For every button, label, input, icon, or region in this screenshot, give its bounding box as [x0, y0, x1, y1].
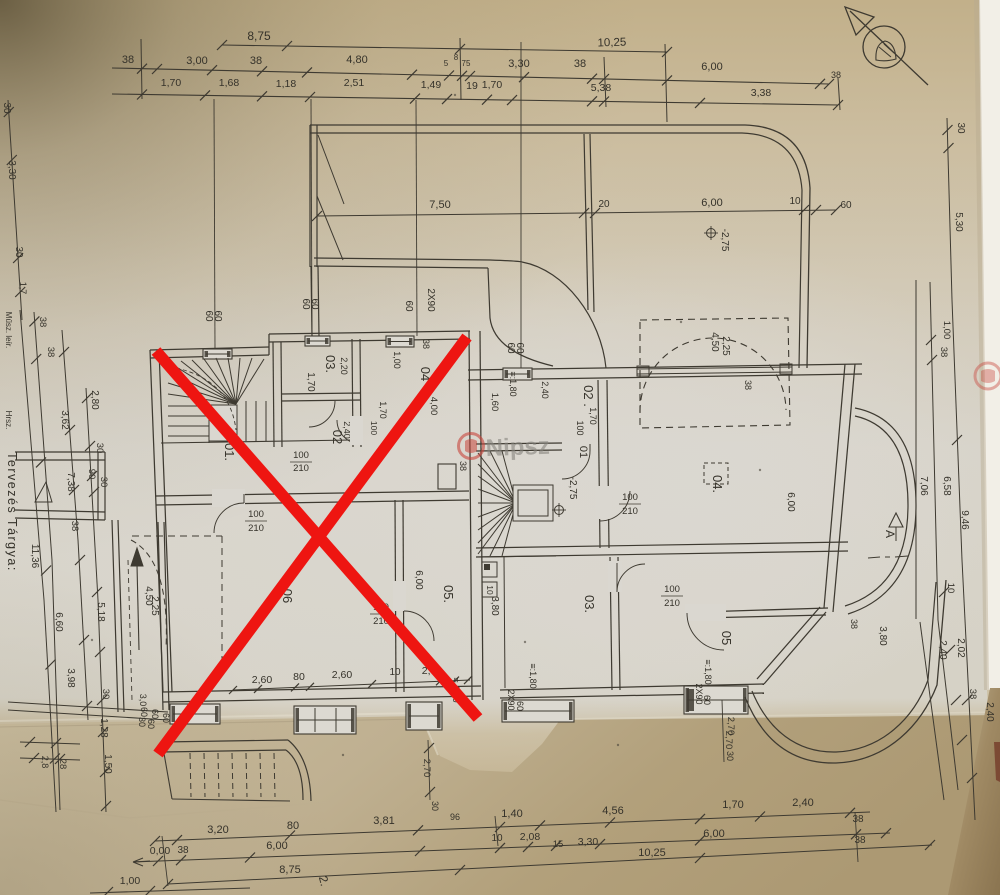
svg-text:3,30: 3,30: [578, 836, 599, 848]
svg-text:3,62: 3,62: [59, 410, 70, 430]
svg-text:10: 10: [389, 667, 401, 678]
svg-text:3,0: 3,0: [138, 694, 148, 707]
svg-text:1,00: 1,00: [392, 351, 402, 369]
svg-text:38: 38: [967, 689, 978, 700]
svg-text:7,50: 7,50: [429, 199, 450, 211]
svg-text:38: 38: [122, 54, 134, 66]
svg-text:03.: 03.: [323, 355, 338, 373]
svg-text:5: 5: [444, 59, 449, 68]
svg-text:1,70: 1,70: [588, 407, 598, 425]
svg-text:11,36: 11,36: [29, 544, 40, 569]
svg-text:2,40: 2,40: [792, 797, 813, 809]
svg-text:4,50: 4,50: [709, 332, 720, 352]
svg-text:30: 30: [98, 477, 109, 488]
svg-text:10: 10: [485, 585, 495, 595]
svg-text:100: 100: [369, 421, 379, 435]
svg-text:≡:1,80: ≡:1,80: [508, 371, 518, 396]
svg-text:1,00: 1,00: [120, 875, 141, 887]
svg-text:38: 38: [37, 317, 48, 328]
svg-text:8,75: 8,75: [247, 29, 271, 43]
svg-text:75: 75: [462, 59, 471, 68]
svg-text:1,70: 1,70: [722, 799, 743, 811]
svg-text:1,70: 1,70: [378, 401, 388, 419]
svg-text:05.: 05.: [441, 585, 456, 603]
svg-text:4,56: 4,56: [602, 805, 623, 817]
svg-text:60: 60: [309, 298, 320, 310]
svg-text:2,51: 2,51: [344, 77, 365, 89]
svg-text:5,18: 5,18: [95, 602, 106, 622]
svg-text:60: 60: [161, 713, 171, 723]
svg-text:38: 38: [45, 347, 56, 358]
svg-text:-2,75: -2,75: [719, 229, 730, 252]
svg-text:2X90: 2X90: [425, 288, 436, 312]
svg-text:38: 38: [852, 814, 864, 825]
svg-text:02 .: 02 .: [581, 385, 596, 407]
svg-text:6,00: 6,00: [266, 840, 287, 852]
svg-text:80: 80: [287, 820, 299, 832]
svg-text:60: 60: [139, 707, 149, 717]
svg-text:60: 60: [403, 300, 414, 312]
svg-text:1,7: 1,7: [18, 282, 28, 295]
svg-text:38: 38: [177, 845, 189, 856]
svg-text:1,49: 1,49: [421, 79, 442, 91]
svg-text:38: 38: [421, 339, 431, 349]
svg-text:30: 30: [1, 102, 12, 114]
svg-text:30: 30: [13, 246, 24, 258]
svg-text:2,70: 2,70: [725, 717, 736, 736]
svg-text:2,20: 2,20: [339, 357, 349, 375]
svg-text:4,80: 4,80: [346, 54, 367, 66]
svg-text:60: 60: [702, 695, 712, 705]
svg-text:3,38: 3,38: [751, 87, 772, 99]
svg-text:96: 96: [450, 812, 460, 822]
svg-text:2X90: 2X90: [506, 689, 516, 710]
svg-text:10: 10: [789, 196, 801, 207]
svg-text:3,00: 3,00: [186, 55, 207, 67]
svg-text:30: 30: [725, 751, 735, 761]
svg-text:100: 100: [664, 584, 680, 595]
svg-text:9,46: 9,46: [959, 510, 970, 530]
svg-text:100: 100: [293, 450, 309, 461]
svg-text:0,00: 0,00: [150, 845, 171, 857]
svg-text:03.: 03.: [582, 595, 597, 613]
svg-text:2,02: 2,02: [955, 638, 966, 658]
svg-text:6,60: 6,60: [53, 612, 64, 632]
svg-text:5,38: 5,38: [591, 82, 612, 94]
svg-text:≡:1,80: ≡:1,80: [528, 663, 538, 688]
svg-text:2,8: 2,8: [40, 756, 50, 769]
svg-text:3,30: 3,30: [6, 160, 17, 180]
svg-text:1,60: 1,60: [489, 393, 500, 412]
svg-text:38: 38: [250, 55, 262, 67]
svg-text:60: 60: [212, 310, 223, 322]
svg-text:60: 60: [150, 709, 160, 719]
svg-text:100: 100: [248, 509, 264, 520]
svg-text:1,40: 1,40: [501, 808, 522, 820]
svg-text:38: 38: [69, 521, 80, 532]
svg-text:60: 60: [840, 200, 852, 211]
svg-text:3,80: 3,80: [489, 596, 500, 616]
svg-text:38: 38: [458, 461, 468, 471]
svg-text:8: 8: [454, 53, 459, 62]
svg-text:15: 15: [553, 839, 564, 850]
svg-text:2,25: 2,25: [149, 596, 160, 616]
svg-text:6,00: 6,00: [701, 197, 722, 209]
svg-text:3,20: 3,20: [207, 824, 228, 836]
svg-text:7,38: 7,38: [65, 472, 76, 492]
svg-text:2,40: 2,40: [937, 640, 948, 660]
svg-text:Tervezés Tárgya:: Tervezés Tárgya:: [5, 452, 19, 572]
svg-text:38: 38: [849, 619, 859, 629]
svg-text:10: 10: [945, 583, 956, 594]
svg-text:1,50: 1,50: [102, 754, 113, 774]
svg-text:5,30: 5,30: [953, 212, 964, 232]
svg-text:38: 38: [938, 347, 949, 358]
svg-text:210: 210: [622, 506, 638, 517]
svg-text:210: 210: [248, 523, 264, 534]
svg-text:60: 60: [146, 719, 156, 729]
svg-text:Hrsz.: Hrsz.: [4, 411, 13, 430]
svg-text:2,25: 2,25: [720, 336, 731, 356]
svg-text:210: 210: [293, 463, 309, 474]
svg-text:3,81: 3,81: [373, 815, 394, 827]
svg-text:-2,75: -2,75: [567, 477, 578, 500]
svg-text:Műsz. leír.: Műsz. leír.: [4, 312, 13, 348]
svg-text:3,98: 3,98: [65, 668, 76, 688]
svg-text:38: 38: [743, 380, 753, 390]
svg-text:4,00: 4,00: [428, 397, 439, 416]
svg-text:60: 60: [514, 342, 525, 354]
svg-text:30: 30: [955, 122, 966, 134]
svg-text:A: A: [883, 530, 897, 538]
svg-text:≡:1,80: ≡:1,80: [703, 659, 713, 684]
svg-text:2,70: 2,70: [421, 759, 432, 778]
svg-text:90: 90: [86, 469, 97, 480]
svg-text:100: 100: [575, 420, 585, 435]
svg-text:1,68: 1,68: [219, 77, 240, 89]
svg-text:1,28: 1,28: [98, 718, 109, 738]
svg-text:01: 01: [577, 446, 589, 458]
svg-text:6,00: 6,00: [701, 61, 722, 73]
svg-text:3,80: 3,80: [877, 626, 888, 646]
svg-text:1,70: 1,70: [161, 77, 182, 89]
svg-text:80: 80: [293, 671, 305, 683]
svg-text:8,75: 8,75: [279, 864, 300, 876]
svg-text:7,06: 7,06: [918, 476, 929, 496]
svg-text:2,60: 2,60: [332, 669, 353, 681]
svg-text:60: 60: [515, 701, 525, 711]
svg-text:1,70: 1,70: [482, 79, 503, 91]
svg-text:2,08: 2,08: [520, 831, 541, 843]
svg-text:10,25: 10,25: [597, 37, 626, 50]
svg-text:6,00: 6,00: [703, 828, 724, 840]
svg-text:Nipsz: Nipsz: [485, 433, 550, 462]
svg-text:1,70: 1,70: [305, 372, 316, 392]
svg-text:1,18: 1,18: [276, 78, 297, 90]
svg-text:210: 210: [664, 598, 680, 609]
svg-text:6,00: 6,00: [785, 492, 796, 512]
svg-text:2,60: 2,60: [252, 674, 273, 686]
svg-text:30: 30: [100, 689, 111, 700]
svg-text:05: 05: [719, 631, 734, 645]
svg-text:3,30: 3,30: [508, 58, 529, 70]
svg-text:2,80: 2,80: [89, 390, 100, 410]
svg-text:100: 100: [622, 492, 638, 503]
svg-text:10,25: 10,25: [638, 847, 666, 859]
svg-text:19: 19: [466, 80, 478, 92]
svg-text:2,40: 2,40: [984, 702, 995, 722]
svg-text:38: 38: [831, 70, 841, 80]
svg-text:38: 38: [574, 58, 586, 70]
svg-text:2,40: 2,40: [540, 381, 550, 399]
svg-text:30: 30: [430, 801, 440, 811]
svg-text:1,00: 1,00: [941, 321, 952, 340]
svg-text:6,00: 6,00: [413, 570, 424, 590]
svg-text:20: 20: [598, 199, 610, 210]
svg-text:30: 30: [137, 717, 147, 727]
svg-text:6,58: 6,58: [941, 476, 952, 496]
